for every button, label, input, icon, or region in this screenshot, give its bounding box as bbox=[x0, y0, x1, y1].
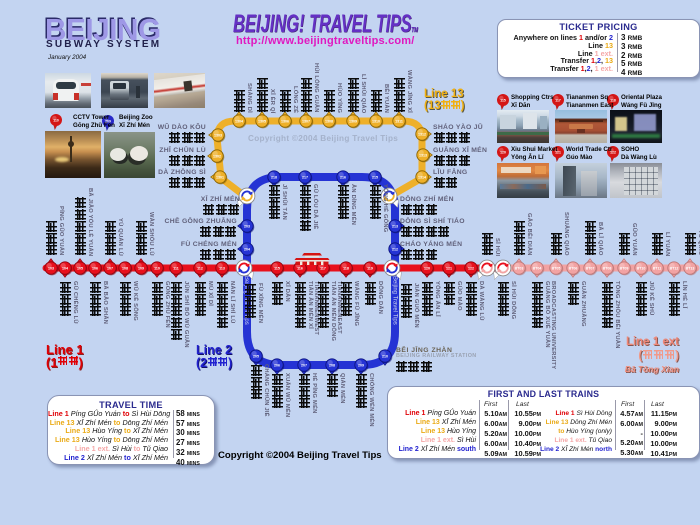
svg-text:203: 203 bbox=[244, 224, 250, 228]
svg-text:215: 215 bbox=[372, 175, 378, 179]
svg-text:1309: 1309 bbox=[349, 119, 357, 123]
svg-text:209: 209 bbox=[358, 363, 364, 367]
svg-text:120: 120 bbox=[424, 266, 430, 270]
svg-text:1308: 1308 bbox=[325, 119, 333, 123]
svg-text:BT09: BT09 bbox=[620, 266, 629, 270]
svg-text:212: 212 bbox=[392, 247, 398, 251]
svg-text:1303: 1303 bbox=[214, 133, 222, 137]
svg-text:116: 116 bbox=[297, 266, 303, 270]
svg-text:120: 120 bbox=[500, 151, 506, 155]
svg-text:110: 110 bbox=[154, 266, 160, 270]
svg-text:1306: 1306 bbox=[281, 119, 289, 123]
svg-text:117: 117 bbox=[320, 266, 326, 270]
svg-text:1304: 1304 bbox=[235, 119, 243, 123]
svg-text:1314: 1314 bbox=[418, 175, 426, 179]
svg-text:1301: 1301 bbox=[216, 175, 224, 179]
svg-text:1310: 1310 bbox=[372, 119, 380, 123]
svg-text:218: 218 bbox=[271, 175, 277, 179]
svg-text:BT07: BT07 bbox=[586, 266, 595, 270]
svg-text:BT05: BT05 bbox=[552, 266, 561, 270]
svg-text:118: 118 bbox=[343, 266, 349, 270]
svg-text:210: 210 bbox=[382, 354, 388, 358]
svg-text:BT13: BT13 bbox=[686, 266, 695, 270]
svg-text:BT04: BT04 bbox=[533, 266, 542, 270]
svg-text:105: 105 bbox=[77, 266, 83, 270]
svg-text:208: 208 bbox=[329, 363, 335, 367]
svg-text:1312: 1312 bbox=[418, 132, 426, 136]
svg-text:111: 111 bbox=[173, 266, 179, 270]
svg-text:1311: 1311 bbox=[395, 119, 403, 123]
svg-text:217: 217 bbox=[302, 175, 308, 179]
svg-text:122: 122 bbox=[468, 266, 474, 270]
svg-text:206: 206 bbox=[274, 363, 280, 367]
svg-text:1302: 1302 bbox=[213, 154, 221, 158]
svg-text:121: 121 bbox=[446, 266, 452, 270]
svg-text:108: 108 bbox=[122, 266, 128, 270]
svg-text:104: 104 bbox=[62, 266, 68, 270]
svg-text:213: 213 bbox=[392, 224, 398, 228]
svg-text:1307: 1307 bbox=[302, 119, 310, 123]
svg-text:BT06: BT06 bbox=[569, 266, 578, 270]
svg-text:110: 110 bbox=[53, 119, 59, 123]
svg-text:207: 207 bbox=[301, 363, 307, 367]
svg-text:113: 113 bbox=[219, 266, 225, 270]
svg-text:112: 112 bbox=[197, 266, 203, 270]
svg-text:106: 106 bbox=[92, 266, 98, 270]
svg-text:BT12: BT12 bbox=[670, 266, 679, 270]
svg-text:119: 119 bbox=[367, 266, 373, 270]
svg-text:BT11: BT11 bbox=[653, 266, 662, 270]
svg-text:115: 115 bbox=[274, 266, 280, 270]
svg-text:BT03: BT03 bbox=[515, 266, 524, 270]
svg-text:1305: 1305 bbox=[258, 119, 266, 123]
svg-text:103: 103 bbox=[48, 266, 54, 270]
svg-text:1313: 1313 bbox=[419, 153, 427, 157]
svg-text:BT10: BT10 bbox=[637, 266, 646, 270]
svg-text:107: 107 bbox=[107, 266, 113, 270]
svg-text:115: 115 bbox=[500, 99, 506, 103]
svg-text:204: 204 bbox=[244, 247, 250, 251]
svg-text:117: 117 bbox=[555, 99, 561, 103]
svg-text:BT08: BT08 bbox=[603, 266, 612, 270]
svg-text:109: 109 bbox=[138, 266, 144, 270]
svg-text:205: 205 bbox=[253, 354, 259, 358]
svg-text:216: 216 bbox=[340, 175, 346, 179]
